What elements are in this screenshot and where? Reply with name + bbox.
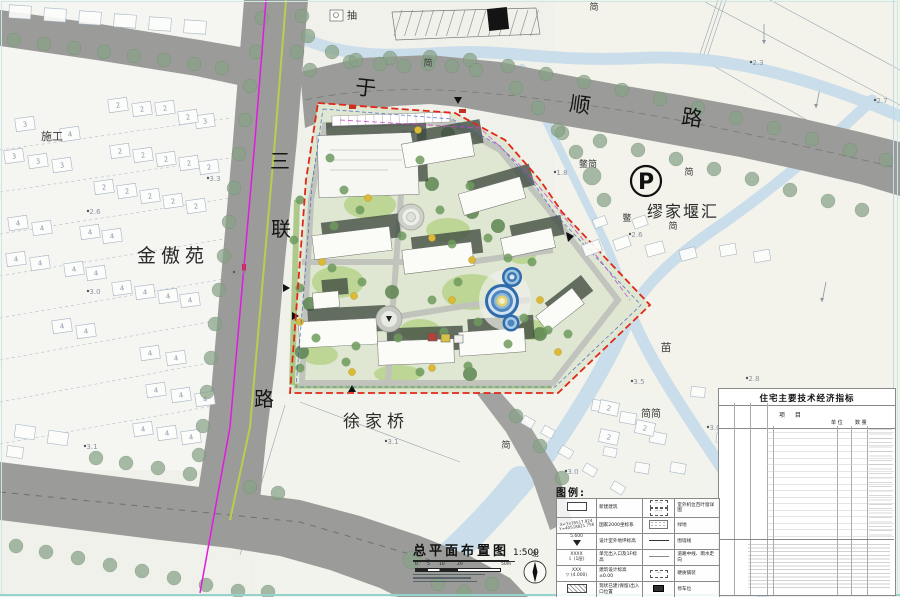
- site-tree: [328, 264, 337, 273]
- site-tree: [398, 232, 407, 241]
- tree: [783, 183, 797, 197]
- house-footprint: 2: [199, 159, 220, 175]
- legend-text: 围墙线: [675, 534, 720, 550]
- legend-text: 停车位: [675, 582, 720, 597]
- site-tree: [358, 278, 367, 287]
- tree: [577, 75, 591, 89]
- house-footprint: 4: [76, 323, 97, 339]
- indicator-table: 住宅主要技术经济指标 项 目 单 位 数 量: [718, 388, 896, 596]
- tree: [593, 134, 607, 148]
- titleblock: 总平面布置图1:500 0 5 10 20 50m 北: [413, 540, 573, 596]
- site-tree: [356, 206, 365, 215]
- house-footprint: 3: [52, 157, 73, 173]
- area-label-jinaoyuan: 金傲苑: [137, 245, 209, 267]
- site-tree: [544, 326, 553, 335]
- label-biejian: 鳖简: [579, 158, 597, 170]
- tree: [103, 558, 117, 572]
- legend: 图例: 新建建筑 ⌐¬ ⌐¬ 室外机位百叶窗详图 X=3378517.924Y=…: [556, 484, 722, 596]
- context-house: [149, 17, 172, 32]
- tree: [669, 152, 683, 166]
- tree: [501, 59, 515, 73]
- indicator-table-title: 住宅主要技术经济指标: [719, 389, 895, 406]
- header-unit: 单 位: [831, 419, 843, 426]
- legend-row: XXX▽ (4.000) 建筑设计标高±0.00 ·–· 硬质铺装: [557, 566, 720, 582]
- elevation-dot: [631, 380, 633, 382]
- tree: [879, 153, 893, 167]
- tree: [551, 123, 565, 137]
- scale-bar: [415, 568, 501, 573]
- yellow-tree: [429, 235, 436, 242]
- tree: [212, 283, 226, 297]
- house-footprint: 2: [110, 143, 131, 159]
- elev: 2.3: [752, 59, 763, 67]
- rect-symbol: [567, 502, 587, 511]
- tree: [805, 132, 819, 146]
- title-notes: [413, 574, 491, 582]
- tree: [167, 571, 181, 585]
- house-footprint: 4: [6, 251, 27, 267]
- house-footprint: 2: [108, 97, 129, 113]
- area-label-xujiaqiao: 徐家桥: [343, 412, 409, 432]
- tree: [729, 111, 743, 125]
- elev: 3.1: [86, 443, 97, 451]
- site-tree: [448, 240, 457, 249]
- legend-row: XXXX⇩ (1层) 单元出入口及1F标高 道路中线、雨水走向: [557, 550, 720, 566]
- paving-symbol: ·–·: [642, 566, 674, 582]
- tree: [271, 486, 285, 500]
- tree: [539, 67, 553, 81]
- label-bie: 鳖: [622, 212, 631, 224]
- tree: [183, 467, 197, 481]
- house-footprint: 2: [178, 109, 199, 125]
- tick-10: 10: [439, 562, 445, 567]
- elev: 3.0: [89, 288, 100, 296]
- tree: [89, 451, 103, 465]
- context-house: [603, 446, 617, 457]
- elev: 2.8: [748, 375, 759, 383]
- site-tree: [454, 278, 463, 287]
- house-footprint: 4: [30, 255, 51, 271]
- residential-building: [458, 328, 526, 357]
- pump-station: [330, 10, 343, 21]
- pool-a6: [499, 298, 505, 304]
- road-label-shun: 顺: [568, 92, 592, 119]
- context-house: [6, 445, 23, 458]
- house-footprint: 2: [156, 151, 177, 167]
- label-jian-a: 简: [423, 57, 432, 69]
- north-compass: 北: [521, 548, 549, 588]
- elevation-dot: [233, 271, 235, 273]
- tree: [243, 79, 257, 93]
- site-tree: [466, 182, 475, 191]
- note-line: [413, 574, 485, 575]
- elevation-dot: [746, 377, 748, 379]
- house-footprint: 4: [86, 265, 107, 281]
- tree: [445, 59, 459, 73]
- context-house: [634, 462, 650, 474]
- site-tree: [330, 222, 339, 231]
- tree: [821, 194, 835, 208]
- tree: [196, 419, 210, 433]
- site-tree: [312, 334, 321, 343]
- tree: [39, 545, 53, 559]
- legend-row: 现状已建(保留)出入口位置 停车位: [557, 582, 720, 597]
- tree: [397, 59, 411, 73]
- site-tree: [416, 368, 425, 377]
- elevation-dot: [554, 171, 556, 173]
- yellow-tree: [351, 293, 358, 300]
- house-footprint: 4: [102, 228, 123, 244]
- house-footprint: 4: [64, 261, 85, 277]
- house-footprint: 4: [158, 288, 179, 304]
- house-footprint: 4: [171, 387, 192, 403]
- yellow-tree: [349, 369, 356, 376]
- context-house: [9, 5, 32, 20]
- residential-building: [378, 339, 455, 366]
- tree: [243, 480, 257, 494]
- road-label-san: 三: [270, 149, 290, 173]
- plaza-roundabout-1: [398, 204, 424, 230]
- gate-white: [454, 335, 463, 343]
- tree: [631, 143, 645, 157]
- podium-building: [317, 132, 419, 197]
- context-house: [44, 8, 67, 23]
- tree: [653, 92, 667, 106]
- house-footprint: 4: [52, 318, 73, 334]
- floor-label: (1层): [574, 557, 585, 562]
- legend-text: 国家2000坐标系: [597, 518, 643, 534]
- tree: [7, 33, 21, 47]
- header-item: 项 目: [779, 410, 805, 419]
- legend-text: 建筑设计标高±0.00: [597, 566, 643, 582]
- filled-rect-symbol: [653, 585, 664, 592]
- tree: [295, 9, 309, 23]
- house-footprint: 4: [146, 382, 167, 398]
- tree: [373, 57, 387, 71]
- tree: [127, 49, 141, 63]
- tree: [569, 145, 583, 159]
- yellow-tree: [297, 319, 304, 326]
- house-footprint: 2: [186, 198, 207, 214]
- yellow-tree: [429, 365, 436, 372]
- house-footprint: 3: [15, 116, 36, 132]
- site-tree: [296, 196, 305, 205]
- house-footprint: 4: [180, 292, 201, 308]
- site-tree: [296, 284, 305, 293]
- house-footprint: 2: [140, 188, 161, 204]
- tree: [255, 11, 269, 25]
- elev: 1.8: [556, 169, 567, 177]
- tree: [97, 45, 111, 59]
- site-tree: [296, 364, 305, 373]
- table-notes-texture: [748, 544, 890, 590]
- label-miao: 苗: [661, 341, 672, 354]
- context-house: [691, 386, 706, 397]
- tree: [469, 63, 483, 77]
- house-footprint: 4: [166, 350, 187, 366]
- house-footprint: 4: [80, 224, 101, 240]
- site-tree: [394, 334, 403, 343]
- site-tree: [474, 318, 483, 327]
- tick-50m: 50m: [501, 562, 511, 567]
- black-building: [487, 7, 509, 31]
- site-tree: [340, 186, 349, 195]
- tree: [303, 63, 317, 77]
- pool-b4: [510, 275, 515, 280]
- tree: [204, 351, 218, 365]
- legend-table: 新建建筑 ⌐¬ ⌐¬ 室外机位百叶窗详图 X=3378517.924Y=4051…: [556, 498, 720, 597]
- site-tree: [416, 156, 425, 165]
- site-tree: [436, 206, 445, 215]
- shed-mark: [459, 109, 466, 113]
- site-tree: [464, 362, 473, 371]
- context-house: [79, 11, 102, 26]
- house-footprint: 4: [133, 421, 154, 437]
- site-tree: [352, 342, 361, 351]
- tree: [238, 113, 252, 127]
- elev: 3.0: [567, 468, 578, 476]
- label-jian-c: 简: [684, 166, 693, 178]
- pool-c3: [508, 320, 515, 327]
- house-footprint: 4: [112, 280, 133, 296]
- tree: [232, 147, 246, 161]
- green-area-symbol: [642, 518, 674, 534]
- site-tree: [520, 314, 529, 323]
- elevation-dot: [707, 426, 709, 428]
- legend-title: 图例:: [556, 484, 722, 498]
- legend-text: 单元出入口及1F标高: [597, 550, 643, 566]
- tree: [119, 456, 133, 470]
- tree: [290, 45, 304, 59]
- tree: [855, 203, 869, 217]
- context-house: [670, 462, 687, 474]
- legend-text: 硬质铺装: [675, 566, 720, 582]
- site-tree: [428, 296, 437, 305]
- road-label-lu2: 路: [254, 387, 274, 411]
- tree: [707, 162, 721, 176]
- house-footprint: 4: [135, 284, 156, 300]
- tree: [531, 101, 545, 115]
- house-footprint: 2: [117, 183, 138, 199]
- tick-5: 5: [427, 562, 430, 567]
- drawing-title: 总平面布置图: [413, 544, 509, 562]
- header-qty: 数 量: [855, 419, 867, 426]
- tree: [37, 37, 51, 51]
- tree: [509, 81, 523, 95]
- tick-20: 20: [457, 562, 463, 567]
- level-number: (4.000): [571, 573, 587, 578]
- site-tree: [326, 154, 335, 163]
- paving-rect-symbol: ·–·: [650, 570, 668, 578]
- triangle-down-icon: [573, 540, 581, 546]
- titleblock-line: 总平面布置图1:500: [413, 540, 573, 559]
- legend-text: 道路中线、雨水走向: [675, 550, 720, 566]
- tree: [67, 41, 81, 55]
- elev: 2.9: [235, 269, 246, 277]
- elev: 3.1: [387, 438, 398, 446]
- elevation-dot: [750, 61, 752, 63]
- tree: [187, 57, 201, 71]
- context-house: [114, 14, 137, 29]
- site-tree: [342, 358, 351, 367]
- tree: [843, 143, 857, 157]
- area-label-miujiayanhui: 缪家堰汇: [647, 202, 719, 221]
- tree: [157, 53, 171, 67]
- residential-building: [298, 318, 377, 348]
- tree: [349, 53, 363, 67]
- context-house: [184, 20, 207, 35]
- elevation-dot: [874, 99, 876, 101]
- road-label-lian: 联: [271, 217, 291, 241]
- new-building-symbol: [557, 499, 597, 518]
- road-label-yu: 于: [354, 75, 377, 101]
- elev: 2.6: [89, 208, 101, 216]
- tree: [151, 461, 165, 475]
- legend-text: 设计室外地坪标高: [597, 534, 643, 550]
- yellow-tree: [537, 297, 544, 304]
- yellow-tree: [365, 195, 372, 202]
- road-label-lu: 路: [680, 105, 704, 132]
- elev: 2.6: [631, 231, 643, 239]
- legend-text: 绿地: [675, 518, 720, 534]
- elev: 3.5: [633, 378, 644, 386]
- house-footprint: 3: [28, 153, 49, 169]
- tree: [222, 215, 236, 229]
- yellow-tree: [319, 259, 326, 266]
- tree: [597, 193, 611, 207]
- elevation-dot: [87, 290, 89, 292]
- legend-row: 新建建筑 ⌐¬ ⌐¬ 室外机位百叶窗详图: [557, 499, 720, 518]
- tree-cluster: [491, 219, 505, 233]
- elevation-dot: [207, 177, 209, 179]
- gate-red: [428, 333, 437, 341]
- house-footprint: 2: [94, 179, 115, 195]
- site-tree: [564, 330, 573, 339]
- context-house: [753, 249, 771, 263]
- legend-text: 新建建筑: [597, 499, 643, 518]
- tree: [745, 172, 759, 186]
- site-tree: [504, 254, 513, 263]
- site-plan-canvas: 3333342222222222222244444444444444444444…: [0, 0, 900, 597]
- wall-line-symbol: [642, 534, 674, 550]
- house-footprint: 4: [140, 345, 161, 361]
- tree: [215, 61, 229, 75]
- tick-0: 0: [415, 562, 418, 567]
- tree: [208, 317, 222, 331]
- tree: [135, 564, 149, 578]
- house-footprint: 2: [179, 155, 200, 171]
- elevation-dot: [84, 445, 86, 447]
- elevation-dot: [87, 210, 89, 212]
- site-tree: [484, 234, 493, 243]
- note-line: [413, 581, 477, 582]
- yellow-tree: [469, 257, 476, 264]
- context-house: [14, 424, 36, 440]
- tree: [200, 385, 214, 399]
- context-house: [719, 243, 737, 257]
- dash-rect-symbol: ⌐¬: [650, 500, 668, 508]
- legend-row: X=3378517.924Y=40518821.758 国家2000坐标系 绿地: [557, 518, 720, 534]
- table-notes: [720, 539, 894, 596]
- tree: [217, 249, 231, 263]
- tree: [301, 29, 315, 43]
- house-footprint: 4: [32, 220, 53, 236]
- road-center-symbol: [642, 550, 674, 566]
- dash-rect-symbol: ⌐¬: [650, 508, 668, 516]
- coordinate-symbol: X=3378517.924Y=40518821.758: [557, 518, 597, 534]
- tree: [615, 83, 629, 97]
- legend-text: 现状已建(保留)出入口位置: [597, 582, 643, 597]
- residential-building: [312, 291, 339, 309]
- plaza1-core: [407, 213, 416, 222]
- louver-symbol: ⌐¬ ⌐¬: [642, 499, 674, 518]
- house-footprint: 2: [132, 101, 153, 117]
- tree: [533, 439, 547, 453]
- tree-cluster: [385, 285, 399, 299]
- legend-row: 5.600 设计室外地坪标高 围墙线: [557, 534, 720, 550]
- tree: [71, 551, 85, 565]
- tree: [509, 409, 523, 423]
- tree: [325, 45, 339, 59]
- legend-text: 室外机位百叶窗详图: [675, 499, 720, 518]
- label-jianjian: 简简: [641, 407, 661, 420]
- tree: [192, 448, 206, 462]
- house-footprint: 4: [181, 429, 202, 445]
- yellow-tree: [449, 297, 456, 304]
- house-footprint: 3: [4, 148, 25, 164]
- yellow-tree: [415, 127, 422, 134]
- house-footprint: 2: [163, 193, 184, 209]
- house-footprint: 4: [8, 215, 29, 231]
- elev: 2.7: [876, 97, 887, 105]
- parking-letter: P: [638, 170, 654, 195]
- elevation-dot: [629, 233, 631, 235]
- label-jian-d: 简: [668, 220, 677, 232]
- note-line: [413, 577, 471, 578]
- tree: [227, 181, 241, 195]
- house-footprint: 2: [133, 147, 154, 163]
- plaza-roundabout-2: [376, 306, 402, 332]
- elevation-dot: [565, 470, 567, 472]
- elev: 3.3: [209, 175, 220, 183]
- tree: [9, 539, 23, 553]
- yellow-tree: [555, 349, 562, 356]
- context-house: [619, 411, 637, 425]
- house-footprint: 4: [157, 425, 178, 441]
- house-footprint: 2: [155, 100, 176, 116]
- north-label: 北: [532, 550, 539, 558]
- label-chou: 抽: [347, 9, 357, 22]
- line-symbol: [649, 540, 669, 541]
- label-jian-b: 简: [589, 1, 598, 13]
- gate-yellow: [441, 334, 450, 342]
- tree: [767, 121, 781, 135]
- elevation-dot: [385, 440, 387, 442]
- site-tree: [504, 340, 513, 349]
- table-remarks-texture: [869, 429, 892, 537]
- parking-space-symbol: [642, 582, 674, 597]
- site-tree: [528, 258, 537, 267]
- thin-line-symbol: [649, 556, 669, 557]
- dotted-rect-symbol: [649, 520, 668, 529]
- label-shigong: 施工: [41, 130, 63, 143]
- label-jian-e: 简: [501, 439, 510, 451]
- context-house: [47, 430, 69, 446]
